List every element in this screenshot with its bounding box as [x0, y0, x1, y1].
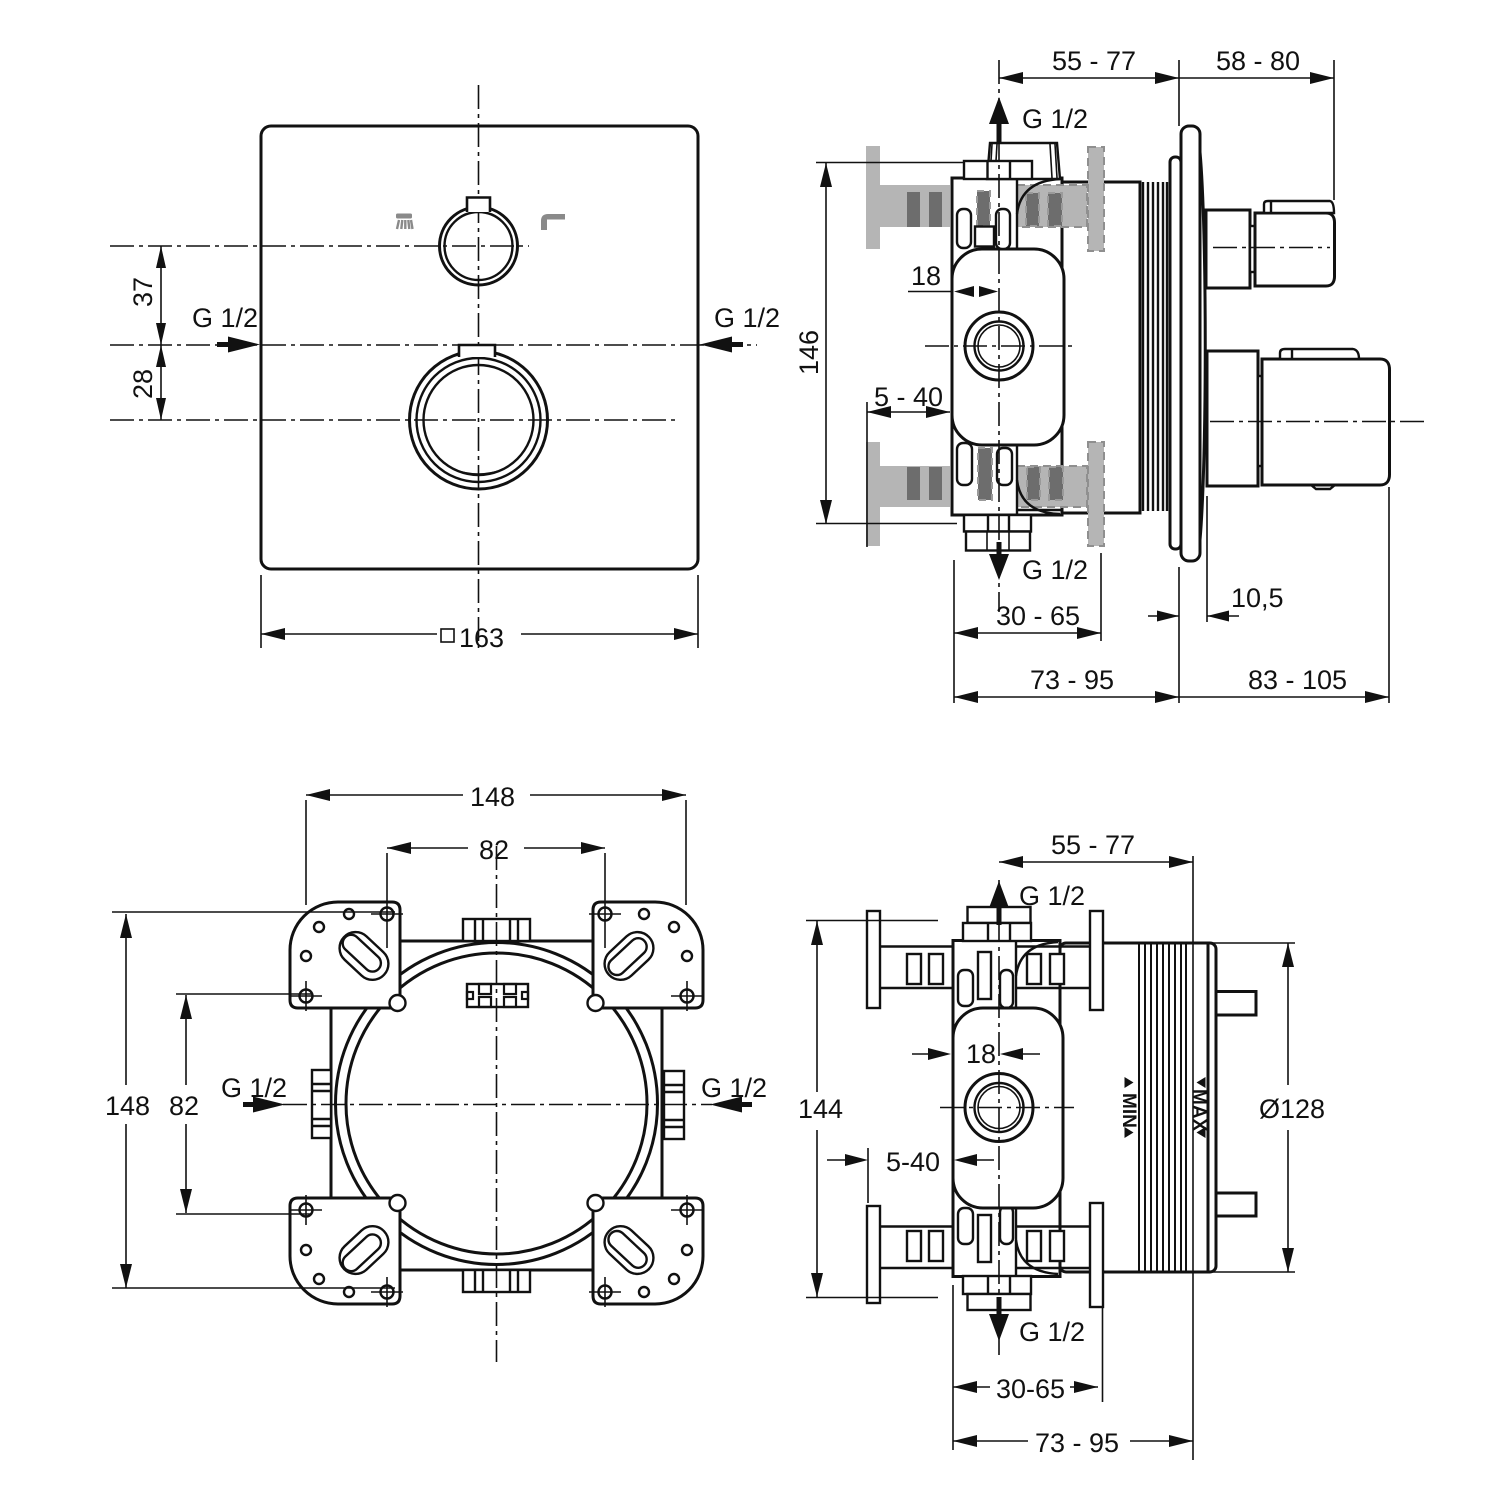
svg-text:73 - 95: 73 - 95 [1030, 665, 1114, 695]
svg-text:82: 82 [479, 835, 509, 865]
svg-text:73 - 95: 73 - 95 [1035, 1428, 1119, 1458]
svg-text:28: 28 [128, 369, 158, 399]
svg-text:5 - 40: 5 - 40 [874, 382, 943, 412]
svg-text:G 1/2: G 1/2 [1022, 555, 1088, 585]
svg-text:MAX: MAX [1188, 1089, 1209, 1132]
svg-text:G 1/2: G 1/2 [192, 303, 258, 333]
svg-text:37: 37 [128, 277, 158, 307]
svg-text:83 - 105: 83 - 105 [1248, 665, 1347, 695]
svg-text:148: 148 [470, 782, 515, 812]
svg-text:G 1/2: G 1/2 [1019, 1317, 1085, 1347]
svg-text:G 1/2: G 1/2 [1022, 104, 1088, 134]
svg-text:58 - 80: 58 - 80 [1216, 46, 1300, 76]
svg-text:55 - 77: 55 - 77 [1052, 46, 1136, 76]
svg-text:163: 163 [459, 623, 504, 653]
svg-text:146: 146 [794, 330, 824, 375]
svg-text:10,5: 10,5 [1231, 583, 1284, 613]
svg-text:5-40: 5-40 [886, 1147, 940, 1177]
svg-text:G 1/2: G 1/2 [714, 303, 780, 333]
svg-text:Ø128: Ø128 [1259, 1094, 1325, 1124]
svg-text:G 1/2: G 1/2 [1019, 881, 1085, 911]
svg-text:18: 18 [911, 261, 941, 291]
svg-text:30 - 65: 30 - 65 [996, 601, 1080, 631]
svg-text:82: 82 [169, 1091, 199, 1121]
svg-text:MIN: MIN [1118, 1093, 1139, 1128]
svg-text:30-65: 30-65 [996, 1374, 1065, 1404]
svg-text:55 - 77: 55 - 77 [1051, 830, 1135, 860]
svg-text:18: 18 [966, 1039, 996, 1069]
svg-text:148: 148 [105, 1091, 150, 1121]
svg-text:144: 144 [798, 1094, 843, 1124]
